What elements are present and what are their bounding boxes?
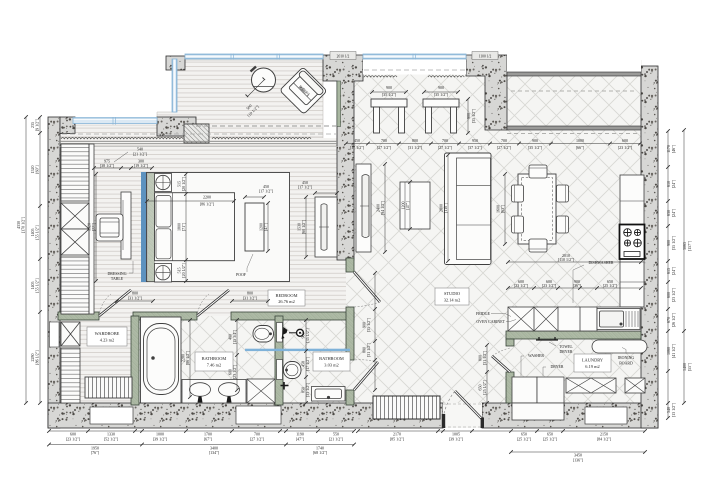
svg-text:DISHWASHER: DISHWASHER <box>588 261 613 265</box>
svg-text:[21 1/2"]: [21 1/2"] <box>133 152 148 157</box>
svg-text:[35 1/2"]: [35 1/2"] <box>382 92 397 97</box>
svg-text:[170 1/2"]: [170 1/2"] <box>21 216 26 233</box>
svg-text:[94 1/2"]: [94 1/2"] <box>380 200 385 215</box>
svg-text:[23 1/2"]: [23 1/2"] <box>232 364 237 379</box>
svg-text:1000: 1000 <box>576 138 584 143</box>
svg-text:6.19 m2: 6.19 m2 <box>585 364 599 369</box>
svg-text:DRESSING: DRESSING <box>107 272 126 276</box>
svg-text:[31 1/2"]: [31 1/2"] <box>128 296 143 301</box>
svg-text:OVEN CABINET: OVEN CABINET <box>476 320 505 324</box>
svg-text:[23 1/2"]: [23 1/2"] <box>542 283 557 288</box>
svg-text:[26 1/2"]: [26 1/2"] <box>671 312 676 327</box>
svg-text:BATHROOM: BATHROOM <box>202 356 227 361</box>
svg-text:WASHER: WASHER <box>528 354 544 358</box>
svg-text:800: 800 <box>412 138 418 143</box>
svg-text:[23 1/2"]: [23 1/2"] <box>618 145 633 150</box>
svg-text:[35 1/2"]: [35 1/2"] <box>305 328 310 343</box>
svg-text:900: 900 <box>386 85 392 90</box>
svg-text:[24"]: [24"] <box>671 208 676 217</box>
svg-text:[25 1/2"]: [25 1/2"] <box>603 283 618 288</box>
svg-text:[86 1/2"]: [86 1/2"] <box>185 350 190 365</box>
svg-text:2200: 2200 <box>203 194 211 199</box>
svg-text:2010 1/2: 2010 1/2 <box>337 55 350 59</box>
svg-text:[35 1/2"]: [35 1/2"] <box>671 235 676 250</box>
svg-text:BATHROOM: BATHROOM <box>319 356 344 361</box>
svg-text:[55 1/2"]: [55 1/2"] <box>35 225 40 240</box>
svg-text:[17 1/2"]: [17 1/2"] <box>298 184 313 189</box>
svg-text:[68 1/2"]: [68 1/2"] <box>313 450 328 455</box>
svg-text:IRONING: IRONING <box>618 356 635 360</box>
svg-text:[55 1/2"]: [55 1/2"] <box>35 278 40 293</box>
svg-text:[67"]: [67"] <box>204 436 213 441</box>
svg-text:[13 1/2"]: [13 1/2"] <box>671 402 676 417</box>
svg-text:[21 1/2"]: [21 1/2"] <box>329 436 344 441</box>
svg-text:FRIDGE: FRIDGE <box>476 312 491 316</box>
svg-text:7.46 m2: 7.46 m2 <box>207 363 221 368</box>
svg-text:26.76 m2: 26.76 m2 <box>278 299 295 304</box>
svg-text:700: 700 <box>381 138 387 143</box>
svg-text:[15 3/4"]: [15 3/4"] <box>232 329 237 344</box>
svg-text:[31 1/2"]: [31 1/2"] <box>366 342 371 357</box>
svg-text:[35 1/2"]: [35 1/2"] <box>366 317 371 332</box>
svg-text:700: 700 <box>501 138 507 143</box>
svg-text:WARDROBE: WARDROBE <box>95 331 120 336</box>
svg-text:[71"]: [71"] <box>181 222 186 231</box>
svg-text:POOF: POOF <box>236 273 247 277</box>
svg-text:[25 1/2"]: [25 1/2"] <box>517 436 532 441</box>
svg-text:[157"]: [157"] <box>687 240 692 251</box>
svg-text:[17 1/2"]: [17 1/2"] <box>259 189 274 194</box>
svg-text:[85 1/2"]: [85 1/2"] <box>390 436 405 441</box>
svg-text:[9 1/2"]: [9 1/2"] <box>35 118 40 131</box>
svg-text:[31 1/2"]: [31 1/2"] <box>408 145 423 150</box>
svg-text:[27 1/2"]: [27 1/2"] <box>497 145 512 150</box>
svg-text:[20 1/2"]: [20 1/2"] <box>181 263 186 278</box>
svg-text:700: 700 <box>442 138 448 143</box>
svg-text:[46"]: [46"] <box>671 144 676 153</box>
svg-text:[25 1/2"]: [25 1/2"] <box>482 380 487 395</box>
svg-text:600: 600 <box>622 138 628 143</box>
svg-text:[17 1/2"]: [17 1/2"] <box>350 145 365 150</box>
svg-text:[23 1/2"]: [23 1/2"] <box>671 287 676 302</box>
svg-text:1100 1/2: 1100 1/2 <box>479 55 492 59</box>
svg-text:[31 1/2"]: [31 1/2"] <box>243 296 258 301</box>
svg-text:[63"]: [63"] <box>500 204 505 213</box>
svg-text:[52 1/2"]: [52 1/2"] <box>104 436 119 441</box>
svg-text:[25 1/2"]: [25 1/2"] <box>543 436 558 441</box>
svg-text:TOWEL: TOWEL <box>559 345 573 349</box>
svg-text:[35 1/2"]: [35 1/2"] <box>528 145 543 150</box>
svg-text:[39 1/2"]: [39 1/2"] <box>153 436 168 441</box>
svg-text:[23 1/2"]: [23 1/2"] <box>514 283 529 288</box>
svg-text:[31 1/2"]: [31 1/2"] <box>482 350 487 365</box>
svg-text:[47"]: [47"] <box>405 201 410 210</box>
svg-text:450: 450 <box>354 138 360 143</box>
svg-text:[84 1/2"]: [84 1/2"] <box>597 436 612 441</box>
svg-text:[27 1/2"]: [27 1/2"] <box>250 436 265 441</box>
svg-text:[55"]: [55"] <box>687 362 692 371</box>
svg-text:950: 950 <box>472 138 478 143</box>
svg-text:[47"]: [47"] <box>296 436 305 441</box>
svg-text:[76"]: [76"] <box>91 450 100 455</box>
svg-text:[20 1/2"]: [20 1/2"] <box>181 176 186 191</box>
svg-text:BEDROOM: BEDROOM <box>276 293 298 298</box>
svg-text:[37 1/2"]: [37 1/2"] <box>468 145 483 150</box>
svg-text:32.14 m2: 32.14 m2 <box>444 298 461 303</box>
svg-text:4.23 m2: 4.23 m2 <box>100 338 114 343</box>
svg-text:[19 1/2"]: [19 1/2"] <box>134 163 149 168</box>
svg-text:[134"]: [134"] <box>209 450 220 455</box>
svg-text:BOARD: BOARD <box>619 362 633 366</box>
svg-text:[86 1/2"]: [86 1/2"] <box>35 350 40 365</box>
svg-text:[17 1/2"]: [17 1/2"] <box>305 356 310 371</box>
svg-text:[86 1/2"]: [86 1/2"] <box>200 201 215 206</box>
svg-text:[33 1/2"]: [33 1/2"] <box>305 382 310 397</box>
svg-text:[47"]: [47"] <box>263 222 268 231</box>
svg-text:[35 1/2"]: [35 1/2"] <box>434 92 449 97</box>
svg-text:LAUNDRY: LAUNDRY <box>582 358 604 363</box>
svg-text:[27 1/2"]: [27 1/2"] <box>377 145 392 150</box>
svg-text:DRYER: DRYER <box>560 350 573 354</box>
svg-text:[23 1/2"]: [23 1/2"] <box>66 436 81 441</box>
svg-text:[24"]: [24"] <box>671 179 676 188</box>
svg-text:[60"]: [60"] <box>35 165 40 174</box>
svg-text:3.03 m2: 3.03 m2 <box>324 363 338 368</box>
svg-text:[35 1/2"]: [35 1/2"] <box>471 108 476 123</box>
svg-text:[41 1/2"]: [41 1/2"] <box>671 343 676 358</box>
svg-text:DRYER: DRYER <box>551 365 564 369</box>
svg-text:[66"]: [66"] <box>576 145 585 150</box>
svg-text:[77"]: [77"] <box>91 222 96 231</box>
svg-text:[24"]: [24"] <box>671 266 676 275</box>
svg-text:STUDIO: STUDIO <box>444 291 460 296</box>
svg-text:[38 1/2"]: [38 1/2"] <box>100 163 115 168</box>
svg-text:900: 900 <box>532 138 538 143</box>
svg-text:[27 1/2"]: [27 1/2"] <box>438 145 453 150</box>
svg-text:[60 1/2"]: [60 1/2"] <box>301 219 306 234</box>
svg-text:[110 1/2"]: [110 1/2"] <box>558 257 575 262</box>
svg-text:[39 1/2"]: [39 1/2"] <box>449 436 464 441</box>
svg-text:[36"]: [36"] <box>573 283 582 288</box>
svg-text:[110"]: [110"] <box>443 202 448 213</box>
svg-text:[136"]: [136"] <box>573 457 584 462</box>
svg-text:900: 900 <box>438 85 444 90</box>
svg-text:TABLE: TABLE <box>111 277 124 281</box>
